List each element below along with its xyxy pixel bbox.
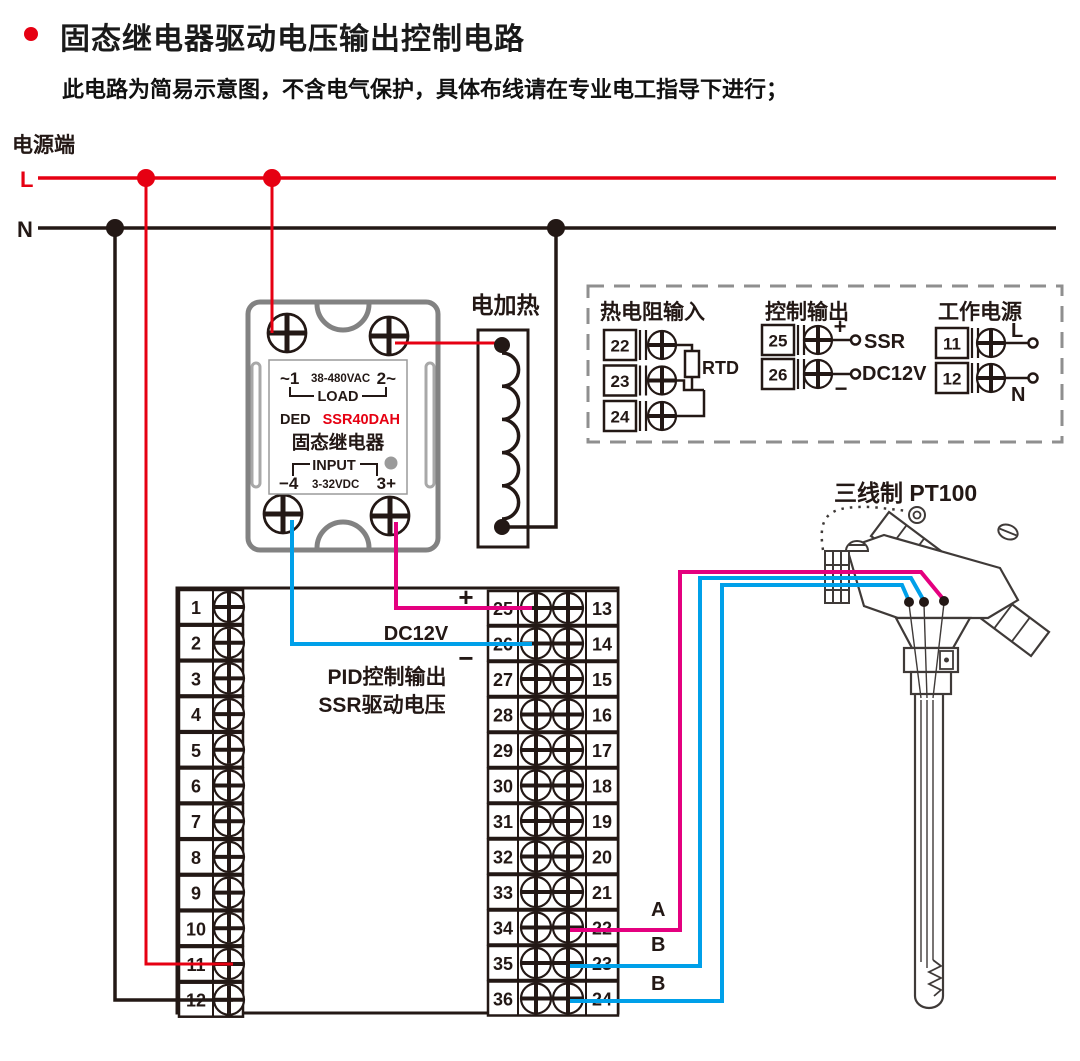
legend-terminal: 23 bbox=[604, 366, 676, 396]
terminal-number: 4 bbox=[191, 705, 201, 725]
wire-b2-label: B bbox=[651, 973, 665, 995]
terminal-row: 5 bbox=[179, 733, 244, 767]
wire-a-label: A bbox=[651, 899, 665, 921]
block-dc12v-label: DC12V bbox=[384, 623, 449, 645]
ssr-dc-right: 3+ bbox=[377, 474, 396, 493]
screw-icon bbox=[521, 913, 551, 943]
legend-rtd-title: 热电阻输入 bbox=[600, 300, 705, 324]
pt100-probe: 三线制 PT100 bbox=[822, 480, 1049, 1008]
terminal-row: 3624 bbox=[488, 982, 618, 1016]
screw-icon bbox=[977, 364, 1005, 392]
terminal-number: 20 bbox=[592, 848, 612, 868]
screw-icon bbox=[521, 842, 551, 872]
terminal-row: 2917 bbox=[488, 733, 618, 767]
terminal-number: 34 bbox=[493, 919, 513, 939]
ssr-input-label: INPUT bbox=[312, 458, 356, 474]
legend-terminal: 24 bbox=[604, 401, 676, 431]
ctrl-dc12v-label: DC12V bbox=[862, 363, 927, 385]
legend-box: 热电阻输入 控制输出 工作电源 22232425261112 RTD + SSR… bbox=[588, 286, 1062, 442]
probe-terminal-dot bbox=[919, 597, 929, 607]
probe-neck bbox=[896, 618, 970, 648]
probe-terminal-dot bbox=[904, 597, 914, 607]
terminal-number: 23 bbox=[611, 372, 630, 391]
screw-icon bbox=[648, 402, 676, 430]
terminal-number: 24 bbox=[611, 408, 630, 427]
pwr-l-label: L bbox=[1011, 320, 1023, 342]
legend-terminal: 25 bbox=[762, 325, 832, 355]
terminal-row: 3 bbox=[179, 661, 244, 695]
terminal-row: 4 bbox=[179, 697, 244, 731]
terminal-number: 15 bbox=[592, 670, 612, 690]
terminal-number: 32 bbox=[493, 848, 513, 868]
collar-dot bbox=[944, 658, 949, 663]
screw-icon bbox=[553, 700, 583, 730]
screw-icon bbox=[553, 735, 583, 765]
terminal-number: 35 bbox=[493, 954, 513, 974]
probe-stem-top bbox=[911, 672, 951, 694]
legend-terminal: 12 bbox=[936, 363, 1005, 393]
ssr-model: SSR40DAH bbox=[323, 412, 400, 428]
screw-icon bbox=[268, 314, 306, 352]
screw-icon bbox=[521, 735, 551, 765]
screw-icon bbox=[553, 948, 583, 978]
terminal-row: 1 bbox=[179, 590, 244, 624]
rtd-label: RTD bbox=[702, 358, 739, 378]
terminal-number: 28 bbox=[493, 706, 513, 726]
legend-pwr-title: 工作电源 bbox=[938, 300, 1022, 324]
screw-icon bbox=[804, 360, 832, 388]
wire-b1-label: B bbox=[651, 934, 665, 956]
terminal-number: 5 bbox=[191, 741, 201, 761]
terminal-number: 29 bbox=[493, 741, 513, 761]
screw-icon bbox=[553, 913, 583, 943]
terminal-row: 3220 bbox=[488, 840, 618, 874]
pwr-n-label: N bbox=[1011, 384, 1025, 406]
screw-icon bbox=[214, 913, 244, 943]
legend-terminal: 11 bbox=[936, 328, 1005, 358]
terminal-number: 18 bbox=[592, 777, 612, 797]
ctrl-plus-label: + bbox=[834, 314, 847, 339]
terminal-number: 17 bbox=[592, 741, 612, 761]
l-terminal-circle bbox=[1029, 339, 1038, 348]
ctrl-minus-label: − bbox=[835, 376, 848, 401]
screw-icon bbox=[214, 699, 244, 729]
left-terminal-column: 123456789101112 bbox=[179, 590, 244, 1017]
terminal-number: 7 bbox=[191, 812, 201, 832]
cap-pivot-screw-icon bbox=[909, 507, 925, 523]
screw-icon bbox=[214, 842, 244, 872]
screw-icon bbox=[214, 806, 244, 836]
junction-dot bbox=[263, 169, 281, 187]
screw-icon bbox=[214, 735, 244, 765]
dc12v-terminal-circle bbox=[851, 370, 860, 379]
n-terminal-circle bbox=[1029, 374, 1038, 383]
screw-icon bbox=[214, 628, 244, 658]
screw-icon bbox=[521, 664, 551, 694]
screw-icon bbox=[977, 329, 1005, 357]
screw-icon bbox=[553, 984, 583, 1014]
screw-icon bbox=[521, 984, 551, 1014]
power-rails: 电源端 L N bbox=[12, 134, 1056, 242]
terminal-row: 2816 bbox=[488, 698, 618, 732]
block-minus-label: − bbox=[458, 643, 473, 673]
screw-icon bbox=[371, 497, 409, 535]
legend-terminals: 22232425261112 bbox=[604, 325, 1005, 431]
ssr-ac-rating: 38-480VAC bbox=[311, 373, 370, 385]
screw-icon bbox=[648, 367, 676, 395]
ssr-brand: DED bbox=[280, 412, 311, 428]
screw-icon bbox=[214, 663, 244, 693]
screw-icon bbox=[214, 592, 244, 622]
terminal-number: 33 bbox=[493, 883, 513, 903]
screw-icon bbox=[264, 495, 302, 533]
terminal-number: 11 bbox=[943, 335, 961, 354]
ctrl-ssr-label: SSR bbox=[864, 331, 906, 353]
terminal-row: 3523 bbox=[488, 946, 618, 980]
terminal-row: 3018 bbox=[488, 769, 618, 803]
terminal-row: 8 bbox=[179, 840, 244, 874]
terminal-number: 10 bbox=[186, 919, 206, 939]
terminal-row: 10 bbox=[179, 911, 244, 945]
junction-dot bbox=[547, 219, 565, 237]
ssr-name: 固态继电器 bbox=[292, 432, 385, 453]
terminal-number: 25 bbox=[769, 332, 788, 351]
heater-body bbox=[478, 330, 528, 547]
ssr-load-label: LOAD bbox=[317, 389, 358, 405]
probe-stem bbox=[915, 694, 943, 1008]
screw-icon bbox=[553, 771, 583, 801]
screw-icon bbox=[553, 593, 583, 623]
terminal-number: 16 bbox=[592, 706, 612, 726]
wire-b1-to-probe bbox=[570, 578, 924, 966]
screw-icon bbox=[804, 326, 832, 354]
screw-icon bbox=[553, 877, 583, 907]
screw-icon bbox=[553, 842, 583, 872]
wire-b2-to-probe bbox=[570, 585, 909, 1001]
terminal-number: 2 bbox=[191, 634, 201, 654]
sensor-element-icon bbox=[929, 960, 941, 996]
probe-label: 三线制 PT100 bbox=[834, 480, 977, 506]
power-label: 电源端 bbox=[12, 134, 75, 157]
rtd-resistor-icon bbox=[685, 351, 699, 377]
terminal-number: 13 bbox=[592, 599, 612, 619]
ctrl-output-wiring: + SSR DC12V − bbox=[832, 314, 927, 401]
screw-icon bbox=[553, 629, 583, 659]
terminal-number: 12 bbox=[943, 370, 962, 389]
terminal-row: 2 bbox=[179, 626, 244, 660]
terminal-number: 6 bbox=[191, 777, 201, 797]
line-n-label: N bbox=[17, 217, 33, 242]
ssr-ac-right: 2~ bbox=[377, 369, 396, 388]
terminal-row: 9 bbox=[179, 876, 244, 910]
terminal-row: 2715 bbox=[488, 662, 618, 696]
screw-icon bbox=[521, 948, 551, 978]
terminal-number: 14 bbox=[592, 635, 612, 655]
heater-terminal-dot bbox=[494, 337, 510, 353]
ssr-dc-left: −4 bbox=[279, 474, 299, 493]
ssr-drive-label: SSR驱动电压 bbox=[318, 694, 445, 717]
terminal-number: 9 bbox=[191, 884, 201, 904]
heater-label: 电加热 bbox=[471, 292, 540, 318]
screw-icon bbox=[521, 771, 551, 801]
legend-terminal: 22 bbox=[604, 330, 676, 360]
ssr-terminal-circle bbox=[851, 336, 860, 345]
rtd-wiring bbox=[676, 345, 704, 416]
screw-icon bbox=[214, 771, 244, 801]
screw-icon bbox=[553, 664, 583, 694]
screw-icon bbox=[648, 331, 676, 359]
terminal-number: 3 bbox=[191, 669, 201, 689]
terminal-number: 26 bbox=[769, 366, 788, 385]
terminal-number: 36 bbox=[493, 990, 513, 1010]
terminal-number: 8 bbox=[191, 848, 201, 868]
wiring-diagram: 电源端 L N 热电阻输入 控制输出 工作电源 22232425261112 R… bbox=[0, 0, 1080, 1061]
screw-icon bbox=[214, 878, 244, 908]
wire-a-to-probe bbox=[570, 572, 944, 930]
ssr-module: ~1 38-480VAC 2~ LOAD DED SSR40DAH 固态继电器 … bbox=[248, 302, 438, 550]
terminal-row: 6 bbox=[179, 769, 244, 803]
screw-icon bbox=[553, 806, 583, 836]
probe-terminal-dot bbox=[939, 596, 949, 606]
terminal-row: 3321 bbox=[488, 875, 618, 909]
screw-icon bbox=[521, 806, 551, 836]
terminal-row: 3119 bbox=[488, 804, 618, 838]
terminal-number: 22 bbox=[611, 337, 630, 356]
terminal-number: 19 bbox=[592, 812, 612, 832]
terminal-row: 7 bbox=[179, 804, 244, 838]
screw-icon bbox=[370, 317, 408, 355]
heater-terminal-dot bbox=[494, 519, 510, 535]
line-l-label: L bbox=[20, 167, 33, 192]
ssr-dc-rating: 3-32VDC bbox=[312, 479, 359, 491]
screw-icon bbox=[521, 877, 551, 907]
terminal-number: 1 bbox=[191, 598, 201, 618]
heater: 电加热 bbox=[471, 292, 540, 547]
ssr-led-icon bbox=[385, 457, 398, 470]
ssr-ac-left: ~1 bbox=[280, 369, 299, 388]
terminal-block: 123456789101112 251326142715281629173018… bbox=[177, 582, 618, 1017]
terminal-number: 30 bbox=[493, 777, 513, 797]
junction-dot bbox=[106, 219, 124, 237]
pid-output-label: PID控制输出 bbox=[327, 665, 446, 689]
terminal-number: 21 bbox=[592, 883, 612, 903]
screw-icon bbox=[521, 700, 551, 730]
vent-screw-icon bbox=[996, 522, 1020, 542]
right-terminal-columns: 2513261427152816291730183119322033213422… bbox=[488, 591, 618, 1016]
terminal-row: 3422 bbox=[488, 911, 618, 945]
legend-terminal: 26 bbox=[762, 359, 832, 389]
junction-dot bbox=[137, 169, 155, 187]
terminal-number: 31 bbox=[493, 812, 513, 832]
terminal-number: 27 bbox=[493, 670, 513, 690]
work-power-wiring: L N bbox=[1005, 320, 1038, 406]
